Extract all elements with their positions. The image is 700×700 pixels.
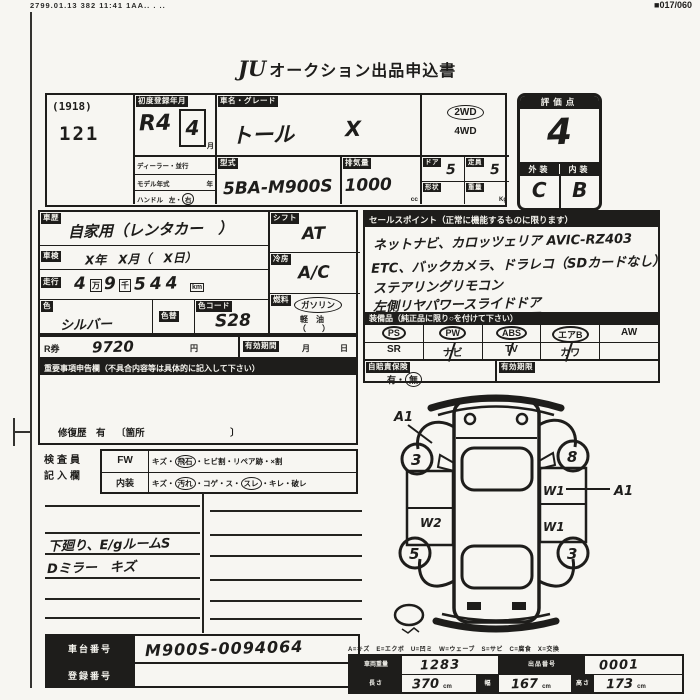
term-day: 日 bbox=[340, 343, 348, 354]
entry-number-label: 出品番号 bbox=[499, 656, 585, 674]
memo-area: 下廻り、E/gルームS Dミラー キズ bbox=[42, 493, 364, 635]
height-label: 高さ bbox=[572, 675, 594, 693]
shape-label: 形状 bbox=[423, 183, 441, 192]
windshield bbox=[462, 448, 532, 490]
ac-cell: 冷房 A/C bbox=[270, 253, 360, 294]
trunk-detail-right bbox=[512, 602, 526, 610]
chassis-table: 車台番号 M900S-0094064 登録番号 bbox=[45, 634, 360, 688]
fender-rear-right bbox=[539, 559, 574, 586]
car-name-label: 車名・グレード bbox=[218, 96, 278, 107]
wheel-mark-front-left: 3 bbox=[411, 451, 421, 469]
model-year-row: モデル年式 年 bbox=[135, 174, 217, 190]
color-label: 色 bbox=[41, 301, 53, 312]
sales-line-1: ネットナビ、カロッツェリア AVIC-RZ403 bbox=[373, 228, 633, 254]
inspector-fw-row: FW キズ・飛石・ヒビ割・リペア跡・×割 bbox=[102, 451, 356, 473]
weight-kg-value-cell: 1283 bbox=[402, 656, 499, 674]
washer-nozzle-left bbox=[465, 414, 475, 424]
inspector-table: FW キズ・飛石・ヒビ割・リペア跡・×割 内装 キズ・汚れ・コゲ・ス・スレ・キレ… bbox=[100, 449, 358, 494]
recycle-yen: 円 bbox=[190, 343, 198, 354]
displacement-label: 排気量 bbox=[343, 158, 371, 169]
color-change-label: 色替 bbox=[159, 311, 179, 322]
lot-number: 121 bbox=[59, 123, 99, 145]
first-registration-cell: 初度登録年月 R4 4 月 bbox=[135, 95, 217, 157]
length-value: 370 bbox=[412, 676, 440, 695]
usage-row: 車歴 自家用（レンタカー ） bbox=[40, 212, 270, 246]
shift-label: シフト bbox=[271, 213, 299, 224]
fw-items: キズ・飛石・ヒビ割・リペア跡・×割 bbox=[149, 455, 356, 468]
insurance-left-cell: 自賠責保険 有・無 bbox=[365, 361, 497, 381]
equip-leather-struck: カワ bbox=[560, 344, 580, 359]
sales-line-2: ETC、バックカメラ、ドラレコ（SDカードなし） bbox=[371, 250, 666, 277]
fuel-cell: 燃料 ガソリン 軽 油 （ ） bbox=[270, 294, 360, 334]
ju-logo: JU bbox=[238, 56, 266, 81]
score-subvalues: C B bbox=[520, 174, 599, 208]
first-registration-era: R4 bbox=[139, 111, 172, 137]
repair-history-line: 修復歴 有 〔箇所 〕 bbox=[58, 425, 240, 439]
length-value-cell: 370cm bbox=[402, 675, 477, 693]
dealer-row: ディーラー・並行 bbox=[135, 157, 217, 174]
length-label: 長さ bbox=[350, 675, 402, 693]
equip-sr: SR bbox=[387, 344, 401, 355]
capacity-label: 定員 bbox=[466, 158, 484, 167]
mileage-d3: 544 bbox=[134, 273, 182, 294]
notice-header: 重要事項申告欄（不具合内容等は具体的に記入して下さい） bbox=[40, 361, 356, 375]
car-name-cell: 車名・グレード トール X bbox=[217, 95, 422, 157]
score-value: 4 bbox=[519, 111, 599, 154]
color-code-cell: 色コード S28 bbox=[194, 300, 270, 334]
damage-w2: W2 bbox=[420, 516, 442, 530]
first-registration-month-box: 4 bbox=[179, 109, 206, 147]
insurance-label: 自賠責保険 bbox=[366, 362, 410, 373]
registration-value-cell bbox=[135, 664, 358, 688]
sales-points-block: セールスポイント（正常に機能するものに限ります） ネットナビ、カロッツェリア A… bbox=[363, 210, 660, 383]
ac-label: 冷房 bbox=[271, 254, 291, 265]
inspector-interior-row: 内装 キズ・汚れ・コゲ・ス・スレ・キレ・破レ bbox=[102, 473, 356, 493]
weight-kg-label: 車両重量 bbox=[350, 656, 402, 674]
form-title: JU オークション出品申込書 bbox=[238, 56, 456, 81]
weight-unit: Kg bbox=[499, 197, 507, 203]
washer-nozzle-right bbox=[517, 414, 527, 424]
equipment-row-1: PS PW ABS エアB AW bbox=[365, 325, 658, 343]
entry-number-value: 0001 bbox=[599, 656, 640, 675]
sales-points-header: セールスポイント（正常に機能するものに限ります） bbox=[365, 212, 658, 227]
mileage-row: 走行 4 万 9 千 544 km bbox=[40, 270, 270, 300]
car-grade-value: X bbox=[345, 117, 362, 141]
equipment-row-2: SR ナビ TV カワ bbox=[365, 343, 658, 359]
mirror-right bbox=[539, 453, 555, 469]
damage-w1-top: W1 bbox=[543, 484, 565, 498]
recycle-label: R券 bbox=[44, 342, 60, 355]
month-suffix: 月 bbox=[207, 141, 214, 151]
interior-item-circled-1: 汚れ bbox=[175, 477, 196, 490]
drive-2wd-circled: 2WD bbox=[447, 105, 483, 120]
wheel-mark-rear-right: 3 bbox=[567, 545, 577, 563]
scan-left-rule bbox=[30, 12, 32, 688]
insurance-row: 自賠責保険 有・無 有効期限 bbox=[365, 359, 658, 381]
notice-box: 重要事項申告欄（不具合内容等は具体的に記入して下さい） 修復歴 有 〔箇所 〕 bbox=[38, 359, 358, 445]
memo-note-2: Dミラー キズ bbox=[47, 556, 136, 577]
door-cell: ドア 5 bbox=[422, 157, 465, 182]
mileage-d1: 4 bbox=[74, 274, 86, 294]
measurement-row-2: 長さ 370cm 幅 167cm 高さ 173cm bbox=[350, 675, 682, 693]
fw-label: FW bbox=[102, 451, 149, 472]
insurance-term-label: 有効期限 bbox=[499, 362, 535, 373]
inspector-caption: 検査員 記入欄 bbox=[44, 453, 83, 485]
car-name-value: トール bbox=[231, 118, 295, 150]
weight-cell: 重量 Kg bbox=[465, 182, 509, 204]
model-code-label: 型式 bbox=[218, 158, 238, 169]
shift-value: AT bbox=[302, 224, 326, 245]
chassis-label: 車台番号 bbox=[47, 636, 135, 662]
weight-label: 重量 bbox=[466, 183, 484, 192]
displacement-value: 1000 bbox=[344, 175, 392, 196]
chassis-value-cell: M900S-0094064 bbox=[135, 636, 358, 662]
mileage-label: 走行 bbox=[41, 277, 61, 288]
header-grid: (1918) 121 初度登録年月 R4 4 月 車名・グレード トール X 2… bbox=[45, 93, 507, 207]
memo-note-1: 下廻り、E/gルームS bbox=[48, 532, 171, 554]
spare-tire-squiggle bbox=[402, 628, 419, 633]
interior-row-label: 内装 bbox=[102, 473, 149, 493]
interior-items: キズ・汚れ・コゲ・ス・スレ・キレ・破レ bbox=[149, 477, 356, 490]
registration-label: 登録番号 bbox=[47, 664, 135, 688]
color-code-value: S28 bbox=[215, 311, 251, 332]
rear-window bbox=[462, 546, 532, 588]
width-label: 幅 bbox=[477, 675, 499, 693]
ac-value: A/C bbox=[298, 263, 330, 284]
scanned-auction-sheet: 2799.01.13 382 11:41 1AA.. . .. ■017/060… bbox=[0, 0, 700, 700]
damage-w1-bottom: W1 bbox=[543, 520, 565, 534]
first-registration-label: 初度登録年月 bbox=[136, 96, 188, 107]
term-label: 有効期間 bbox=[243, 341, 279, 352]
spare-tire-mark bbox=[395, 605, 423, 625]
chassis-value: M900S-0094064 bbox=[145, 634, 304, 664]
recycle-value: 9720 bbox=[92, 337, 134, 356]
capacity-value: 5 bbox=[490, 162, 500, 178]
inspection-label: 車検 bbox=[41, 251, 61, 262]
mileage-u1: 万 bbox=[90, 279, 102, 292]
a1-pointer-line bbox=[408, 425, 432, 443]
damage-a1-right: A1 bbox=[613, 484, 633, 499]
equip-airbag-circled: エアB bbox=[552, 326, 589, 343]
color-value: シルバー bbox=[60, 313, 112, 333]
drive-4wd: 4WD bbox=[422, 126, 509, 137]
interior-item-circled-2: スレ bbox=[241, 477, 262, 490]
entry-number-value-cell: 0001 bbox=[585, 656, 682, 674]
fuel-label: 燃料 bbox=[271, 295, 291, 306]
equip-tv-struck: TV bbox=[505, 344, 518, 355]
handle-right-circled: 右 bbox=[182, 193, 195, 205]
drive-cell: 2WD 4WD bbox=[422, 95, 509, 157]
recycle-row: R券 9720 円 有効期間 月 日 bbox=[38, 335, 358, 359]
exterior-grade: C bbox=[520, 174, 561, 208]
equip-abs-circled: ABS bbox=[496, 326, 527, 340]
weight-kg-value: 1283 bbox=[420, 656, 461, 675]
form-title-text: オークション出品申込書 bbox=[269, 57, 456, 81]
height-unit: cm bbox=[637, 684, 646, 690]
door-label: ドア bbox=[423, 158, 441, 167]
vehicle-detail-block: 車歴 自家用（レンタカー ） 車検 X年 X月（ X日） 走行 4 万 9 千 … bbox=[38, 210, 358, 335]
fw-item-circled: 飛石 bbox=[175, 455, 196, 468]
lot-code: (1918) bbox=[52, 100, 92, 113]
interior-grade: B bbox=[561, 174, 600, 208]
height-value: 173 bbox=[606, 676, 634, 695]
wheel-mark-front-right: 8 bbox=[567, 448, 577, 466]
scan-margin-tick2 bbox=[13, 431, 30, 433]
displacement-unit: cc bbox=[411, 196, 418, 203]
measurement-table: 車両重量 1283 出品番号 0001 長さ 370cm 幅 167cm 高さ … bbox=[348, 654, 684, 694]
equipment-header: 装備品（純正品に限り○を付けて下さい） bbox=[365, 312, 658, 325]
lot-cell: (1918) 121 bbox=[47, 95, 135, 204]
width-value-cell: 167cm bbox=[499, 675, 572, 693]
handle-row: ハンドル 左・右 bbox=[135, 190, 217, 204]
damage-a1-top: A1 bbox=[393, 410, 413, 425]
measurement-row-1: 車両重量 1283 出品番号 0001 bbox=[350, 656, 682, 675]
wheel-mark-rear-left: 5 bbox=[409, 545, 419, 563]
shift-cell: シフト AT bbox=[270, 212, 360, 253]
fax-header-left: 2799.01.13 382 11:41 1AA.. . .. bbox=[30, 1, 166, 10]
car-damage-diagram: 3 8 5 3 A1 W1 A1 W1 W2 bbox=[378, 383, 690, 637]
color-row: 色 シルバー 色替 色コード S28 bbox=[40, 300, 270, 334]
color-code-label: 色コード bbox=[196, 301, 232, 312]
term-month: 月 bbox=[302, 343, 310, 354]
equip-navi-struck: ナビ bbox=[443, 344, 463, 359]
fuel-gasoline-circled: ガソリン bbox=[294, 297, 342, 313]
equipment-table: PS PW ABS エアB AW SR ナビ TV カワ bbox=[365, 325, 658, 359]
equip-pw-circled: PW bbox=[439, 326, 466, 340]
inspection-row: 車検 X年 X月（ X日） bbox=[40, 246, 270, 270]
width-unit: cm bbox=[542, 684, 551, 690]
equip-aw: AW bbox=[621, 327, 637, 338]
inspection-value: X年 X月（ X日） bbox=[85, 249, 197, 269]
mileage-u2: 千 bbox=[119, 279, 131, 292]
height-value-cell: 173cm bbox=[594, 675, 682, 693]
fender-front-right bbox=[539, 420, 576, 447]
damage-code-legend: A=キズ E=エクボ U=凹ミ W=ウェーブ S=サビ C=腐食 X=交換 bbox=[348, 644, 688, 653]
registration-row: 登録番号 bbox=[47, 664, 358, 688]
length-unit: cm bbox=[443, 684, 452, 690]
shape-cell: 形状 bbox=[422, 182, 465, 204]
usage-value: 自家用（レンタカー ） bbox=[68, 217, 234, 242]
mileage-unit: km bbox=[190, 283, 204, 292]
mileage-d2: 9 bbox=[104, 274, 116, 294]
trunk-detail-left bbox=[467, 602, 481, 610]
usage-label: 車歴 bbox=[41, 213, 61, 224]
drivetrain-column: シフト AT 冷房 A/C 燃料 ガソリン 軽 油 （ ） bbox=[270, 212, 360, 334]
color-change-cell: 色替 bbox=[152, 300, 194, 334]
door-value: 5 bbox=[446, 162, 456, 178]
fax-page-indicator: ■017/060 bbox=[654, 0, 692, 10]
recycle-divider bbox=[238, 337, 240, 357]
measurement-block: A=キズ E=エクボ U=凹ミ W=ウェーブ S=サビ C=腐食 X=交換 車両… bbox=[348, 644, 688, 696]
score-label: 評価点 bbox=[520, 96, 599, 109]
mirror-left bbox=[438, 455, 454, 471]
capacity-cell: 定員 5 bbox=[465, 157, 509, 182]
width-value: 167 bbox=[511, 676, 539, 695]
score-box: 評価点 4 外装 内装 C B bbox=[517, 93, 602, 211]
memo-divider bbox=[202, 493, 204, 633]
fuel-other: （ ） bbox=[298, 323, 330, 334]
chassis-row: 車台番号 M900S-0094064 bbox=[47, 636, 358, 664]
equip-ps-circled: PS bbox=[382, 326, 406, 340]
